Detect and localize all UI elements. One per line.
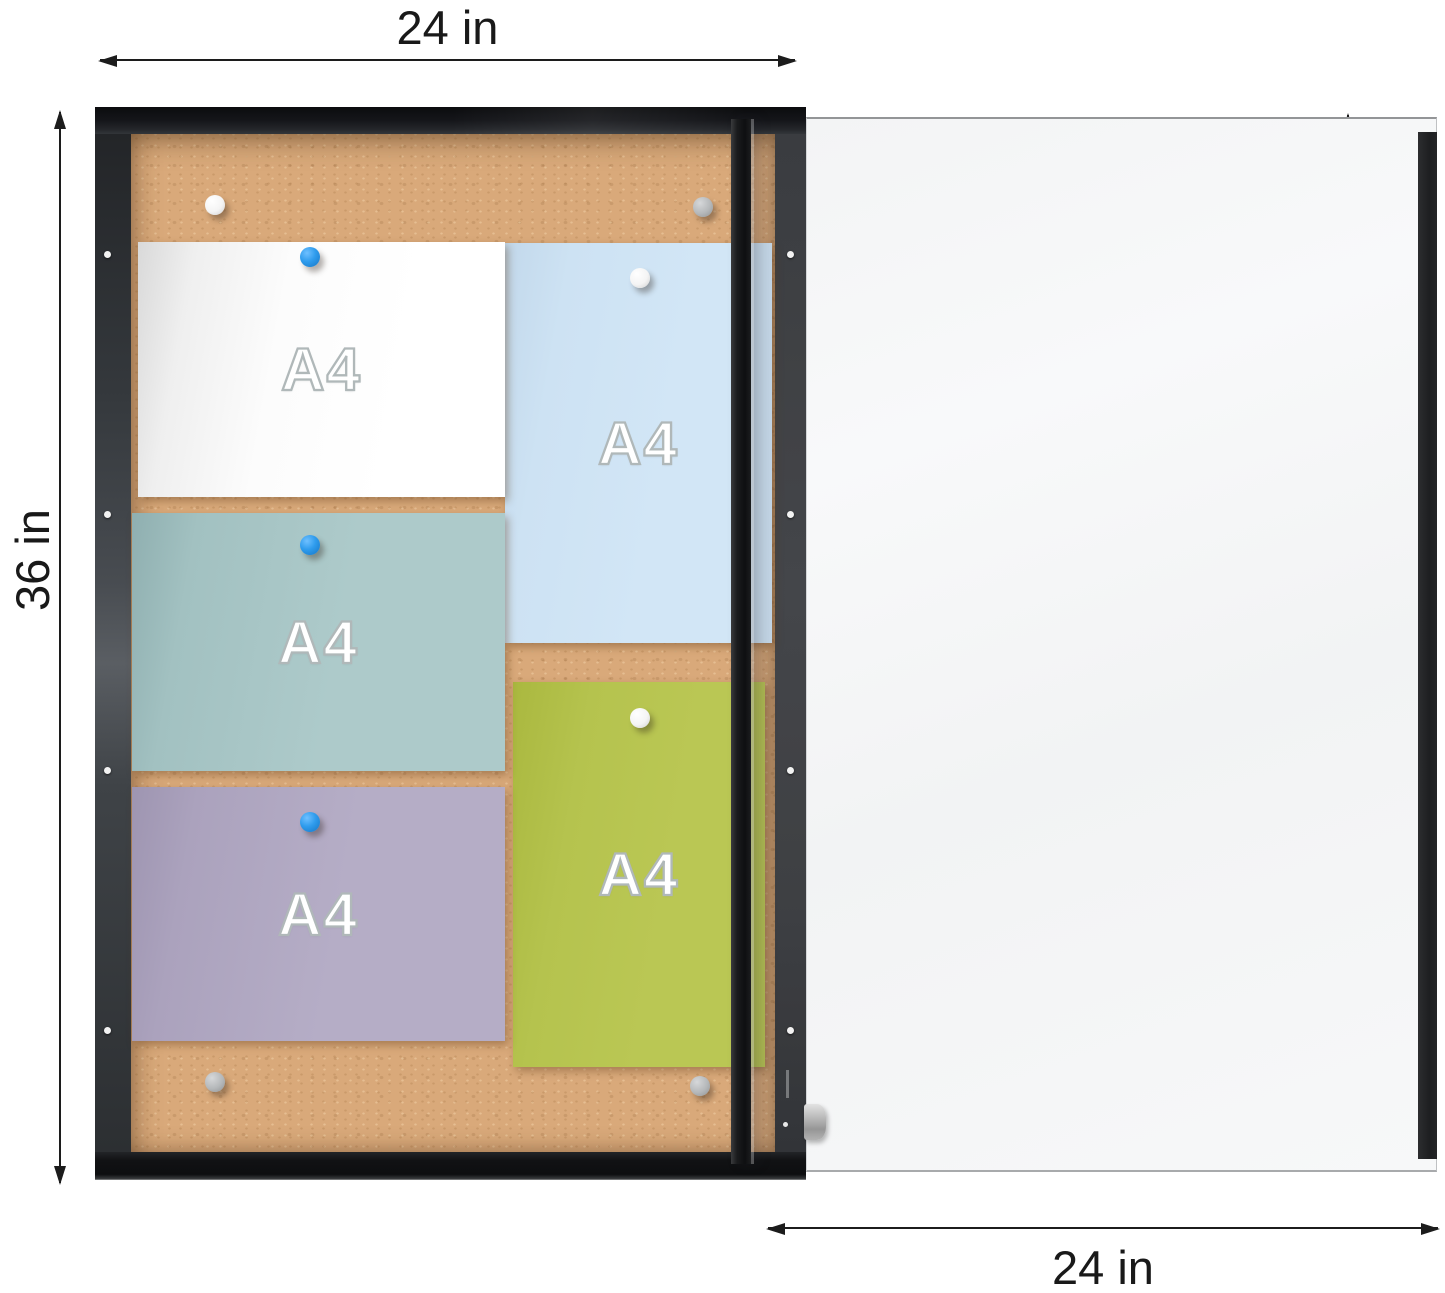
glass-door-handle-strip xyxy=(1418,132,1437,1159)
mounting-screw-icon xyxy=(104,251,111,258)
glass-overlap-shade xyxy=(751,134,806,1152)
cork-board: A4 A4 A4 A4 A4 xyxy=(131,134,775,1152)
lock-knob xyxy=(804,1104,826,1140)
bottom-width-arrow xyxy=(768,1227,1438,1229)
mounting-screw-icon xyxy=(787,511,794,518)
paper-green-a4: A4 xyxy=(513,682,765,1067)
mounting-screw-icon xyxy=(787,767,794,774)
a4-size-label: A4 xyxy=(599,840,680,909)
top-width-arrow xyxy=(100,59,795,61)
product-dimension-diagram: 24 in 36 in 36 in 24 in A4 A4 A4 A4 xyxy=(0,0,1445,1293)
push-pin-gray-icon xyxy=(693,197,713,217)
bottom-width-label: 24 in xyxy=(768,1240,1438,1293)
a4-size-label: A4 xyxy=(278,880,359,949)
cabinet-bottom-frame xyxy=(95,1152,806,1180)
lock-pin-dot xyxy=(783,1122,788,1127)
push-pin-white-icon xyxy=(630,268,650,288)
a4-size-label: A4 xyxy=(281,335,362,404)
a4-size-label: A4 xyxy=(598,409,679,478)
door-left-rail xyxy=(731,119,751,1164)
mounting-screw-icon xyxy=(787,1027,794,1034)
push-pin-gray-icon xyxy=(205,1072,225,1092)
push-pin-white-icon xyxy=(205,195,225,215)
mounting-screw-icon xyxy=(787,251,794,258)
lock-latch-slot xyxy=(786,1070,789,1098)
paper-white-a4: A4 xyxy=(138,242,505,497)
push-pin-gray-icon xyxy=(690,1076,710,1096)
glass-door-panel xyxy=(806,117,1437,1172)
push-pin-blue-icon xyxy=(300,812,320,832)
push-pin-blue-icon xyxy=(300,247,320,267)
paper-teal-a4: A4 xyxy=(132,513,505,771)
top-width-label: 24 in xyxy=(100,0,795,55)
mounting-screw-icon xyxy=(104,767,111,774)
left-height-arrow xyxy=(59,112,61,1183)
cabinet-left-frame xyxy=(95,134,131,1152)
mounting-screw-icon xyxy=(104,511,111,518)
bulletin-board-cabinet: A4 A4 A4 A4 A4 xyxy=(95,107,806,1180)
push-pin-white-icon xyxy=(630,708,650,728)
cabinet-top-frame xyxy=(95,107,806,134)
push-pin-blue-icon xyxy=(300,535,320,555)
left-height-label: 36 in xyxy=(5,460,55,660)
mounting-screw-icon xyxy=(104,1027,111,1034)
a4-size-label: A4 xyxy=(278,608,359,677)
